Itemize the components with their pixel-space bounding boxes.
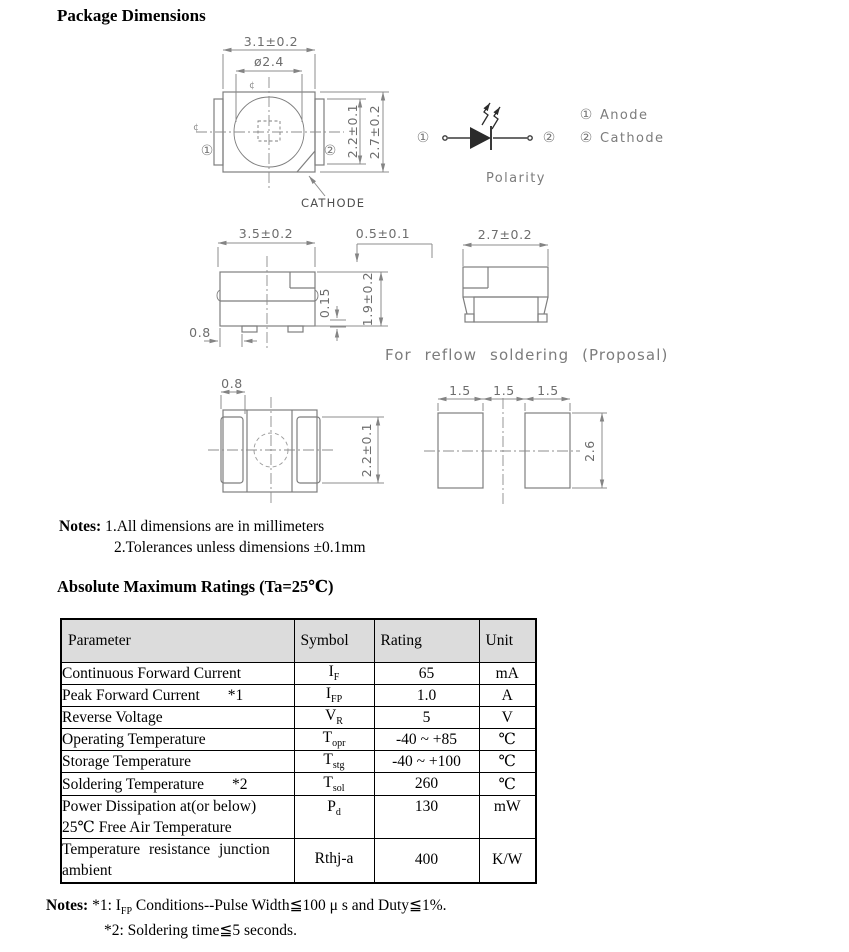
legend-anode-label: Anode xyxy=(600,108,648,123)
rating-value: 65 xyxy=(374,663,479,685)
centerline-mark: ¢ xyxy=(249,81,255,91)
unit-label: ℃ xyxy=(479,751,536,773)
diode-symbol xyxy=(470,127,491,149)
light-arrow xyxy=(492,107,500,129)
top-view-drawing: ¢ ¢ 3.1±0.2 ø2.4 2.2±0.1 2.7±0.2 ① ② CAT… xyxy=(193,34,389,210)
pad-layout-drawing: 1.5 1.5 1.5 2.6 xyxy=(424,383,607,504)
dim-label: 0.8 xyxy=(189,325,211,340)
symbol-label: T xyxy=(323,751,332,768)
symbol-label: T xyxy=(323,774,332,791)
dim-label: 2.7±0.2 xyxy=(367,105,382,159)
notes-text: 2.Tolerances unless dimensions ±0.1mm xyxy=(114,539,366,556)
notes-label: Notes: xyxy=(59,518,101,535)
footnote-line2: *2: Soldering time≦5 seconds. xyxy=(104,921,297,940)
ratings-heading: Absolute Maximum Ratings (Ta=25℃) xyxy=(57,577,334,597)
reflow-caption: For reflow soldering (Proposal) xyxy=(385,346,668,364)
rating-value: 1.0 xyxy=(374,685,479,707)
parameter-label: Storage Temperature xyxy=(62,753,191,770)
rating-value: 260 xyxy=(374,773,479,796)
light-arrow xyxy=(482,103,490,125)
polarity-caption: Polarity xyxy=(486,171,546,186)
unit-label: ℃ xyxy=(479,729,536,751)
parameter-label: Power Dissipation at(or below) xyxy=(62,796,294,817)
parameter-label-line2: 25℃ Free Air Temperature xyxy=(62,817,294,838)
dim-label: 2.2±0.1 xyxy=(359,423,374,477)
parameter-label: Reverse Voltage xyxy=(62,709,163,726)
footnote1-text: *1: IFP Conditions--Pulse Width≦100 μ s … xyxy=(92,897,447,914)
footnote-line1: Notes: *1: IFP Conditions--Pulse Width≦1… xyxy=(46,896,447,917)
footnote-mark: *1 xyxy=(228,687,244,704)
pin2-mark: ② xyxy=(543,130,556,146)
dimension-notes-line1: Notes: 1.All dimensions are in millimete… xyxy=(59,518,324,536)
table-row: Soldering Temperature*2 Tsol 260 ℃ xyxy=(61,773,536,796)
table-row: Peak Forward Current*1 IFP 1.0 A xyxy=(61,685,536,707)
unit-label: mA xyxy=(479,663,536,685)
unit-label: K/W xyxy=(479,839,536,883)
ratings-table: Parameter Symbol Rating Unit Continuous … xyxy=(60,618,537,884)
dim-label: 2.2±0.1 xyxy=(345,104,360,158)
dim-label: 1.9±0.2 xyxy=(360,272,375,326)
dim-label: 1.5 xyxy=(449,383,471,398)
parameter-label: Continuous Forward Current xyxy=(62,665,241,682)
dim-label: 3.5±0.2 xyxy=(239,226,293,241)
centerline-mark: ¢ xyxy=(193,123,199,133)
side-view-drawing: 2.7±0.2 xyxy=(463,227,548,322)
legend-cathode-label: Cathode xyxy=(600,131,664,146)
rating-value: 5 xyxy=(374,707,479,729)
dim-label: 2.7±0.2 xyxy=(478,227,532,242)
front-view-drawing: 3.5±0.2 0.8 0.5±0.1 0.15 1.9±0.2 xyxy=(189,226,432,350)
table-row: Storage Temperature Tstg -40 ~ +100 ℃ xyxy=(61,751,536,773)
table-row: Continuous Forward Current IF 65 mA xyxy=(61,663,536,685)
dim-label: 0.15 xyxy=(317,288,332,318)
pin1-mark: ① xyxy=(201,143,214,159)
pin2-mark: ② xyxy=(324,143,337,159)
parameter-label: Peak Forward Current xyxy=(62,687,200,704)
dim-label: ø2.4 xyxy=(254,54,284,69)
table-row: Reverse Voltage VR 5 V xyxy=(61,707,536,729)
dim-label: 0.8 xyxy=(221,376,243,391)
symbol-label: P xyxy=(327,798,336,815)
bottom-view-drawing: 0.8 2.2±0.1 xyxy=(208,376,384,505)
footnote-mark: *2 xyxy=(232,776,248,793)
notes-text: 1.All dimensions are in millimeters xyxy=(105,518,324,535)
cathode-label: CATHODE xyxy=(301,196,365,210)
dim-label: 1.5 xyxy=(537,383,559,398)
table-row: Temperature resistance junction ambient … xyxy=(61,839,536,883)
footnote2-text: *2: Soldering time≦5 seconds. xyxy=(104,922,297,939)
unit-label: V xyxy=(479,707,536,729)
rating-value: -40 ~ +85 xyxy=(374,729,479,751)
dimension-notes-line2: 2.Tolerances unless dimensions ±0.1mm xyxy=(114,539,366,557)
parameter-label: Soldering Temperature xyxy=(62,776,204,793)
table-row: Power Dissipation at(or below) 25℃ Free … xyxy=(61,796,536,839)
dim-label: 2.6 xyxy=(582,440,597,462)
legend-anode-mark: ① xyxy=(580,107,593,123)
rating-value: 400 xyxy=(374,839,479,883)
rating-value: -40 ~ +100 xyxy=(374,751,479,773)
parameter-label-line2: ambient xyxy=(62,860,294,881)
parameter-label: Operating Temperature xyxy=(62,731,206,748)
pin1-mark: ① xyxy=(417,130,430,146)
col-header-parameter: Parameter xyxy=(61,619,294,663)
footnotes-label: Notes: xyxy=(46,897,88,914)
package-drawings: ¢ ¢ 3.1±0.2 ø2.4 2.2±0.1 2.7±0.2 ① ② CAT… xyxy=(0,0,849,515)
cathode-chamfer xyxy=(297,151,315,172)
unit-label: mW xyxy=(479,796,536,839)
col-header-symbol: Symbol xyxy=(294,619,374,663)
symbol-label: Rthj-a xyxy=(315,850,354,867)
rating-value: 130 xyxy=(374,796,479,839)
polarity-diagram: ① ② ① Anode ② Cathode Polarity xyxy=(417,103,665,186)
dim-label: 0.5±0.1 xyxy=(356,226,410,241)
table-row: Operating Temperature Topr -40 ~ +85 ℃ xyxy=(61,729,536,751)
unit-label: ℃ xyxy=(479,773,536,796)
unit-label: A xyxy=(479,685,536,707)
legend-cathode-mark: ② xyxy=(580,130,593,146)
col-header-rating: Rating xyxy=(374,619,479,663)
col-header-unit: Unit xyxy=(479,619,536,663)
table-header-row: Parameter Symbol Rating Unit xyxy=(61,619,536,663)
symbol-label: V xyxy=(325,707,336,724)
dim-label: 3.1±0.2 xyxy=(244,34,298,49)
datasheet-page: Package Dimensions ¢ ¢ 3.1±0.2 xyxy=(0,0,849,952)
symbol-label: T xyxy=(323,729,332,746)
parameter-label: Temperature resistance junction xyxy=(62,839,294,860)
dim-label: 1.5 xyxy=(493,383,515,398)
